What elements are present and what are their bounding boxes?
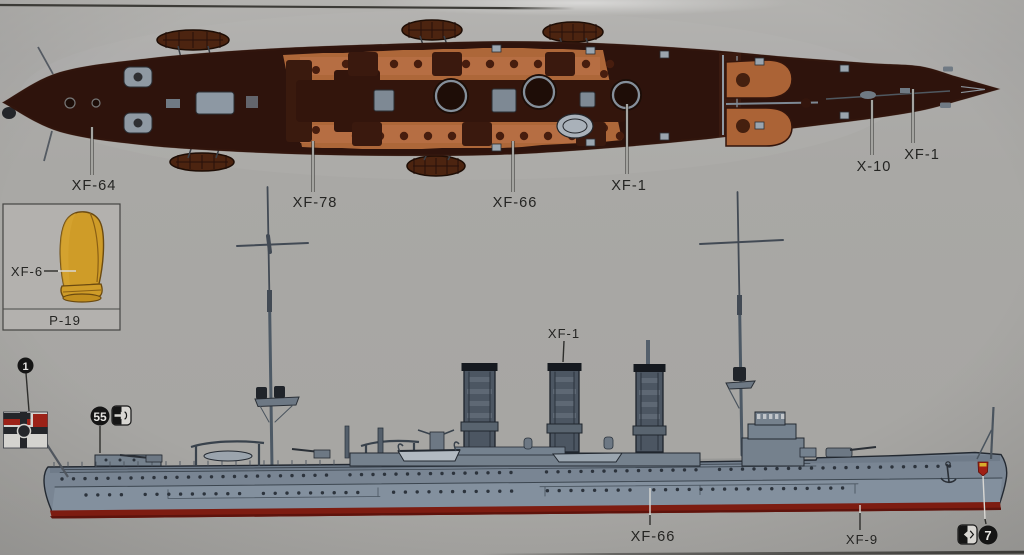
svg-text:1: 1 (22, 361, 28, 373)
svg-text:XF-6: XF-6 (11, 264, 43, 279)
svg-text:55: 55 (93, 410, 107, 424)
svg-text:XF-9: XF-9 (846, 532, 878, 547)
svg-text:X-10: X-10 (857, 159, 892, 175)
svg-text:XF-66: XF-66 (493, 195, 538, 211)
svg-text:XF-1: XF-1 (548, 326, 580, 341)
svg-text:XF-1: XF-1 (611, 178, 647, 194)
svg-text:7: 7 (984, 528, 991, 543)
svg-text:P-19: P-19 (49, 313, 81, 328)
svg-text:XF-64: XF-64 (72, 178, 117, 194)
svg-text:XF-78: XF-78 (293, 195, 338, 211)
svg-text:XF-1: XF-1 (904, 147, 940, 163)
svg-text:XF-66: XF-66 (631, 529, 676, 545)
